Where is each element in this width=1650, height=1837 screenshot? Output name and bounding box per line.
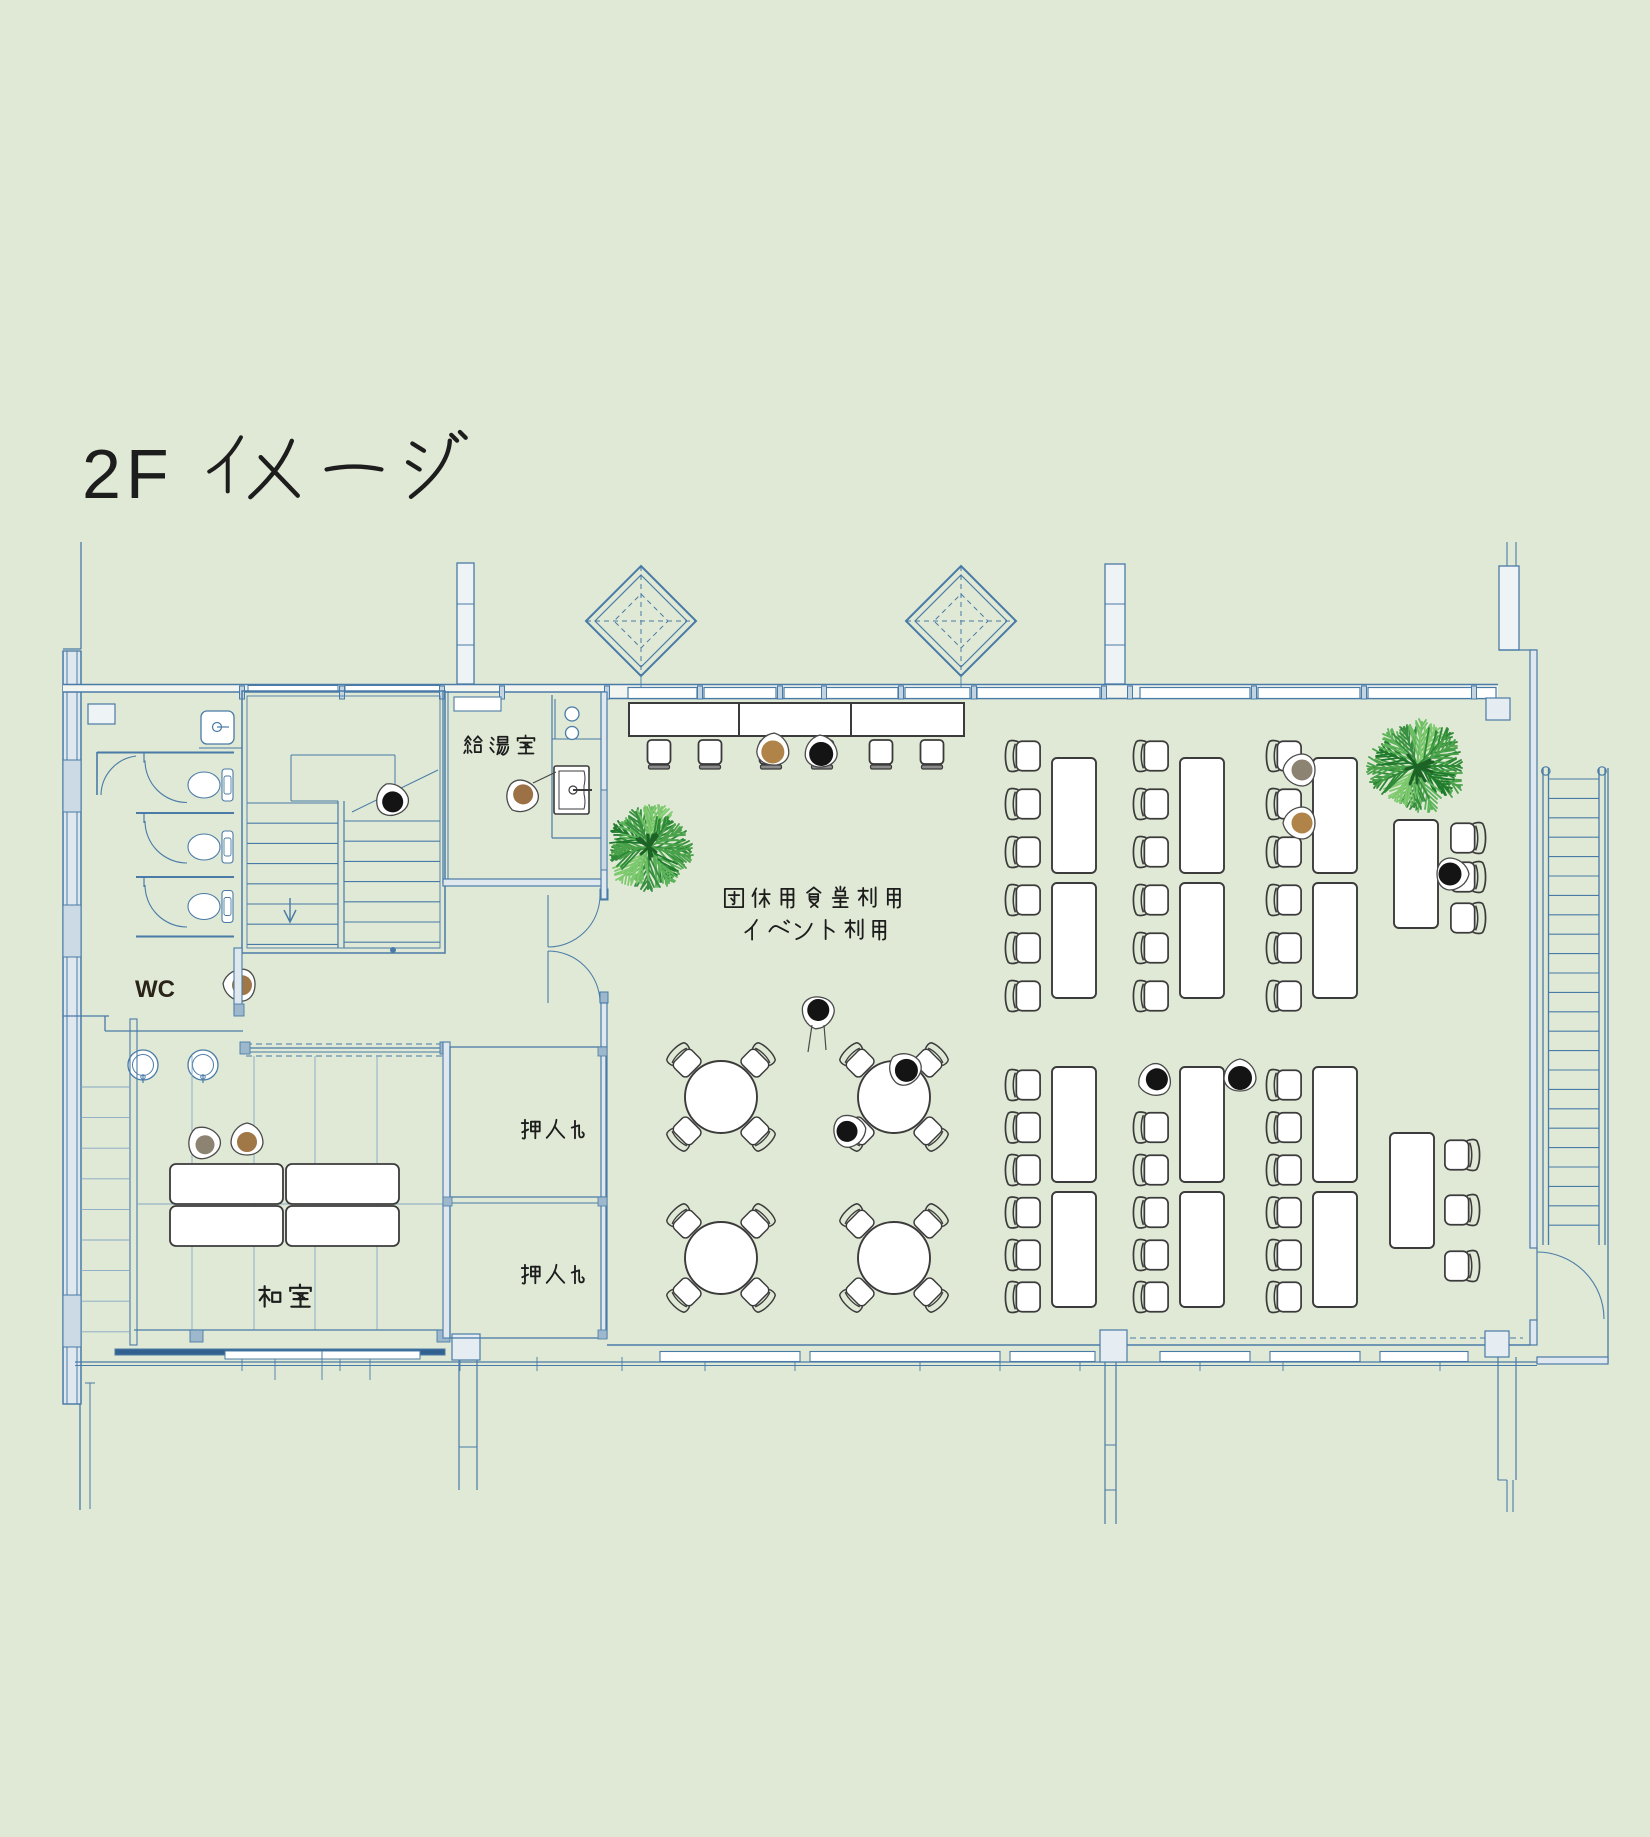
svg-text:WC: WC xyxy=(135,976,175,1003)
svg-text:2F: 2F xyxy=(82,435,174,513)
